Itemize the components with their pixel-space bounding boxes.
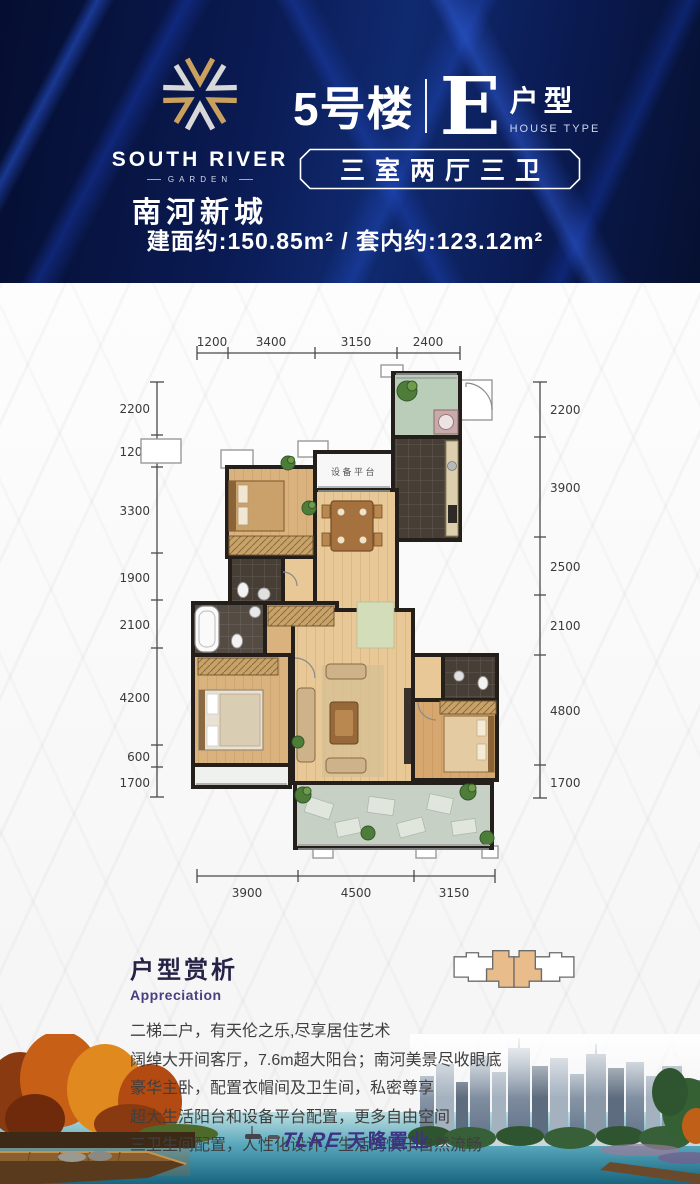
dim-label: 2200 bbox=[119, 402, 150, 416]
area-info-text: 建面约:150.85m² / 套内约:123.12m² bbox=[0, 222, 690, 256]
appreciation-line: 阔绰大开间客厅，7.6m超大阳台；南河美景尽收眼底 bbox=[130, 1047, 530, 1076]
dim-label: 2200 bbox=[550, 403, 580, 417]
layout-summary-box: 三室两厅三卫 bbox=[299, 148, 581, 190]
unit-title-row: 5号楼 E 户型 HOUSE TYPE bbox=[293, 70, 600, 142]
equipment-platform-label: 设备平台 bbox=[331, 466, 377, 478]
pinwheel-logo-icon bbox=[152, 44, 248, 144]
divider-line bbox=[147, 179, 161, 180]
dim-label: 4800 bbox=[550, 704, 580, 718]
developer-logo-en: TLRE bbox=[280, 1129, 342, 1153]
unit-label-cn: 户型 bbox=[510, 78, 601, 120]
brand-name-en: SOUTH RIVER bbox=[105, 148, 295, 172]
dim-label: 2100 bbox=[550, 619, 580, 633]
floorplan-poster: SOUTH RIVER GARDEN 南河新城 5号楼 E 户型 HOUSE T… bbox=[0, 0, 700, 1184]
dim-label: 1900 bbox=[119, 571, 150, 585]
building-number: 5号楼 bbox=[293, 73, 414, 139]
developer-logo: TLRE 天隆置业 bbox=[282, 1126, 431, 1153]
floorplan-drawing: 1200 3400 3150 2400 2200 1200 3300 1900 … bbox=[105, 320, 580, 905]
vertical-divider bbox=[425, 79, 427, 133]
brand-logo-block: SOUTH RIVER GARDEN 南河新城 bbox=[105, 44, 295, 231]
dim-label: 2100 bbox=[119, 618, 150, 632]
dim-label: 3300 bbox=[119, 504, 150, 518]
dim-label: 600 bbox=[127, 750, 150, 764]
developer-logo-cn: 天隆置业 bbox=[347, 1126, 431, 1153]
dim-label: 4500 bbox=[341, 886, 372, 900]
divider-line bbox=[239, 179, 253, 180]
layout-summary-text: 三室两厅三卫 bbox=[299, 148, 581, 190]
dim-label: 3150 bbox=[439, 886, 470, 900]
unit-label-block: 户型 HOUSE TYPE bbox=[510, 78, 601, 135]
dim-label: 1200 bbox=[197, 335, 228, 349]
header-banner: SOUTH RIVER GARDEN 南河新城 5号楼 E 户型 HOUSE T… bbox=[0, 0, 700, 283]
dim-label: 1700 bbox=[119, 776, 150, 790]
unit-label-en: HOUSE TYPE bbox=[510, 123, 601, 135]
dim-label: 3150 bbox=[341, 335, 372, 349]
dim-label: 2500 bbox=[550, 560, 580, 574]
dim-label: 4200 bbox=[119, 691, 150, 705]
dim-label: 3900 bbox=[232, 886, 263, 900]
building-key-plan bbox=[448, 946, 580, 994]
appreciation-line: 二梯二户，有天伦之乐,尽享居住艺术 bbox=[130, 1018, 530, 1047]
brand-sub-row: GARDEN bbox=[105, 175, 295, 184]
dim-label: 1700 bbox=[550, 776, 580, 790]
dim-label: 2400 bbox=[413, 335, 444, 349]
brand-sub-en: GARDEN bbox=[168, 175, 232, 184]
appreciation-line: 豪华主卧，配置衣帽间及卫生间，私密尊享 bbox=[130, 1075, 530, 1104]
dim-label: 3900 bbox=[550, 481, 580, 495]
unit-letter: E bbox=[440, 73, 501, 139]
dim-label: 3400 bbox=[256, 335, 287, 349]
